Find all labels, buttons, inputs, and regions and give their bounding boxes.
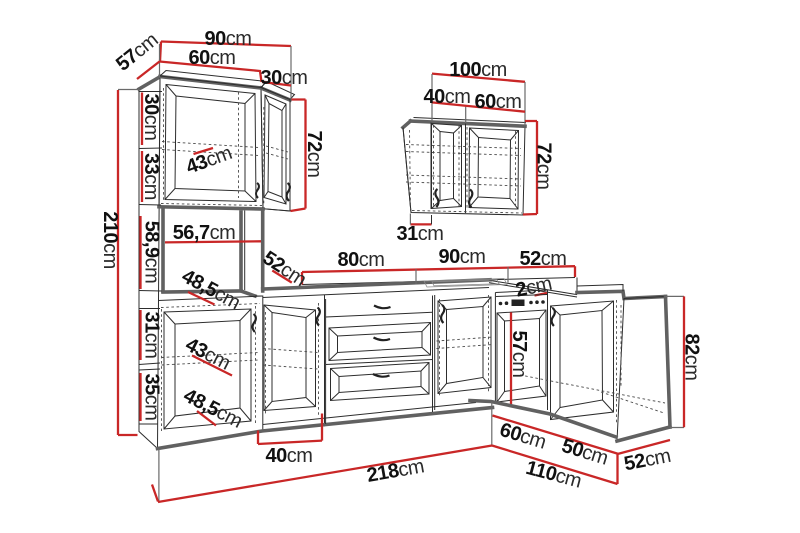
svg-text:35cm: 35cm bbox=[141, 374, 163, 421]
svg-text:82cm: 82cm bbox=[681, 334, 703, 381]
svg-text:90cm: 90cm bbox=[439, 246, 486, 268]
svg-text:56,7cm: 56,7cm bbox=[173, 222, 236, 244]
svg-text:60cm: 60cm bbox=[189, 47, 236, 69]
svg-text:52cm: 52cm bbox=[520, 248, 567, 270]
svg-text:31cm: 31cm bbox=[397, 223, 444, 245]
svg-text:72cm: 72cm bbox=[303, 131, 325, 178]
svg-text:210cm: 210cm bbox=[99, 211, 121, 269]
svg-text:60cm: 60cm bbox=[475, 91, 522, 113]
svg-text:72cm: 72cm bbox=[533, 143, 555, 190]
svg-text:33cm: 33cm bbox=[140, 153, 162, 200]
svg-text:31cm: 31cm bbox=[141, 312, 163, 359]
svg-text:40cm: 40cm bbox=[266, 445, 313, 467]
svg-text:30cm: 30cm bbox=[261, 67, 308, 89]
svg-text:40cm: 40cm bbox=[424, 86, 471, 108]
svg-text:100cm: 100cm bbox=[449, 59, 507, 81]
svg-text:57cm: 57cm bbox=[508, 331, 530, 378]
svg-text:58,9cm: 58,9cm bbox=[141, 221, 163, 284]
svg-text:80cm: 80cm bbox=[338, 249, 385, 271]
svg-text:30cm: 30cm bbox=[140, 94, 162, 141]
